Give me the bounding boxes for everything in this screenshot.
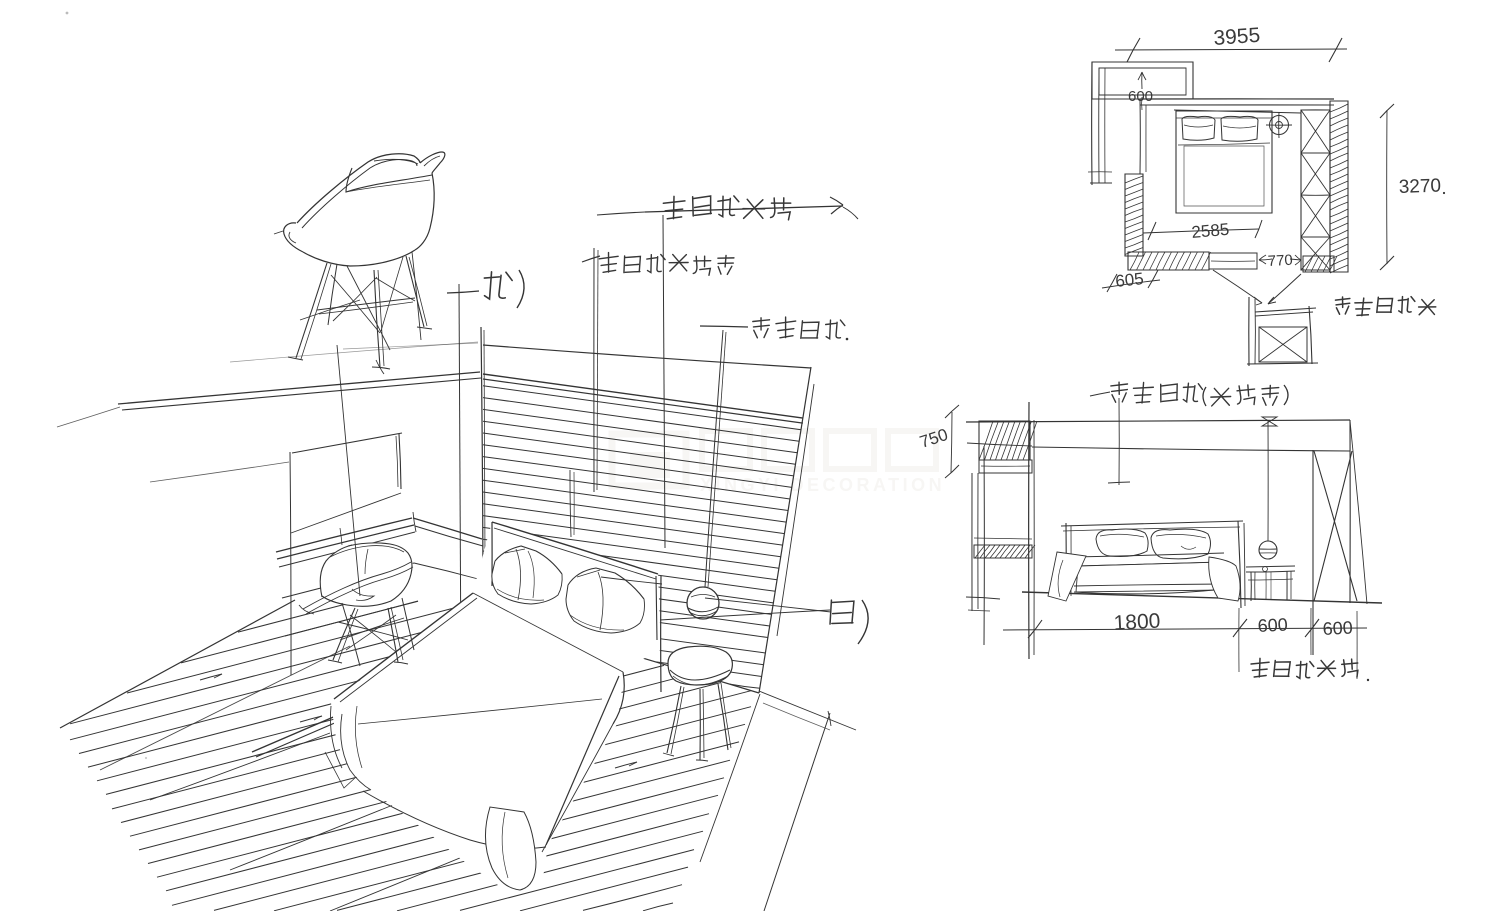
svg-text:3955: 3955 [1213,24,1261,50]
svg-text:600: 600 [1257,614,1288,636]
svg-text:770: 770 [1267,252,1293,270]
svg-text:605: 605 [1114,269,1144,291]
svg-text:XINGYI DECORATION: XINGYI DECORATION [700,475,945,495]
svg-text:600: 600 [1322,617,1353,639]
svg-text:1800: 1800 [1113,610,1161,635]
svg-text:2585: 2585 [1191,220,1230,242]
svg-text:3270: 3270 [1398,176,1441,198]
